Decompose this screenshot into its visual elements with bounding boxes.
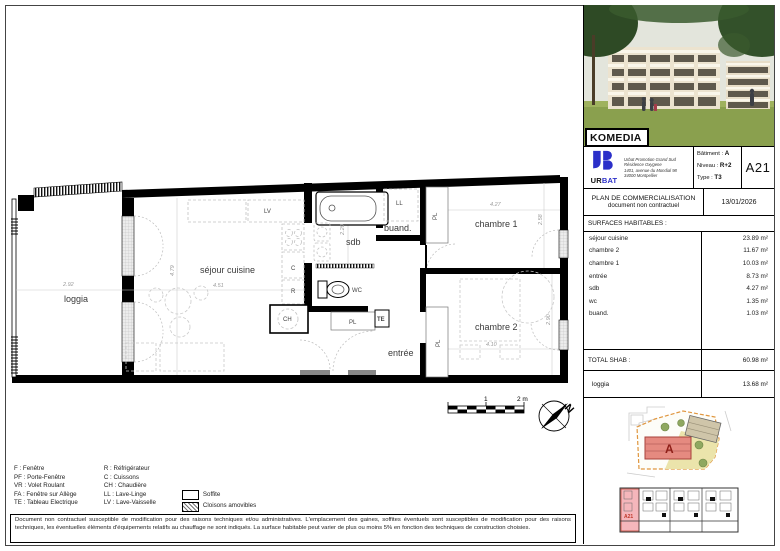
document-title: PLAN DE COMMERCIALISATION document non c…	[584, 189, 703, 215]
developer-identity: URBAT Urbat Promotion Grand Sud Résidenc…	[584, 147, 693, 188]
legend-item: R : Réfrigérateur	[104, 465, 156, 474]
plan-legend: F : Fenêtre PF : Porte-Fenêtre VR : Vole…	[14, 465, 282, 513]
urbat-wordmark: URBAT	[587, 176, 621, 185]
bedroom1-height: 2.58	[538, 213, 544, 226]
title-block-panel: KOMEDIA URBAT Urbat Promotion Grand Sud …	[583, 5, 774, 544]
entrance-hall: PL TE entrée PL	[300, 307, 448, 377]
laundry: LL buand.	[384, 189, 418, 233]
building-render	[584, 5, 774, 146]
table-row: sdb4.27 m²	[584, 282, 774, 295]
surfaces-heading: SURFACES HABITABLES :	[584, 216, 774, 232]
disclaimer-text: Document non contractuel susceptible de …	[15, 517, 571, 531]
legend-item: VR : Volet Roulant	[14, 482, 78, 491]
dishwasher-label: LV	[264, 209, 271, 215]
legend-column-2: R : Réfrigérateur C : Cuissons CH : Chau…	[104, 465, 156, 513]
loggia-width: 2.92	[62, 282, 74, 288]
table-row: entrée8.73 m²	[584, 270, 774, 283]
living-width: 4.51	[213, 283, 224, 289]
bathroom: sdb 2.20	[314, 192, 388, 268]
type-row: Type : T3	[697, 172, 741, 184]
floor-plan-drawing: LV C R CH sd	[8, 175, 583, 440]
table-divider	[701, 371, 702, 397]
hob-label: C	[291, 266, 296, 272]
living-height: 4.79	[170, 265, 176, 276]
bedroom1: PL chambre 1 4.27 2.58	[426, 187, 544, 274]
washer-label: LL	[396, 201, 403, 207]
wc-room: WC	[318, 281, 363, 298]
exterior-walls	[11, 175, 568, 383]
developer-block: URBAT Urbat Promotion Grand Sud Résidenc…	[584, 147, 774, 189]
loggia-wall-windows	[122, 198, 163, 375]
key-unit-label: A21	[624, 514, 633, 520]
bedroom1-width: 4.27	[490, 202, 502, 208]
document-title-row: PLAN DE COMMERCIALISATION document non c…	[584, 189, 774, 216]
scale-mid-label: 1	[484, 396, 488, 403]
unit-info: Bâtiment : A Niveau : R+2 Type : T3	[693, 147, 741, 188]
table-divider	[701, 350, 702, 370]
batiment-row: Bâtiment : A	[697, 148, 741, 160]
floor-key-map: A21	[618, 485, 740, 537]
legend-item: F : Fenêtre	[14, 465, 78, 474]
bedroom2-width: 4.10	[486, 342, 498, 348]
urbat-logo-icon	[591, 150, 617, 170]
legend-column-1: F : Fenêtre PF : Porte-Fenêtre VR : Vole…	[14, 465, 78, 513]
urbat-logo: URBAT	[587, 150, 621, 185]
boiler-label: CH	[283, 317, 292, 323]
bathroom-label: sdb	[346, 237, 361, 247]
bedroom2: chambre 2 4.10 2.90	[460, 271, 554, 359]
legend-item: LL : Lave-Linge	[104, 491, 156, 500]
entrance-label: entrée	[388, 348, 414, 358]
site-plan-map: A	[625, 401, 733, 479]
boiler: CH	[270, 305, 308, 333]
table-row: chambre 110.03 m²	[584, 257, 774, 270]
bedroom1-closet-label: PL	[433, 212, 439, 220]
building-photo: KOMEDIA	[584, 5, 774, 147]
north-compass: N	[539, 401, 576, 431]
legend-item: C : Cuissons	[104, 474, 156, 483]
cloisons-swatch	[182, 502, 199, 512]
table-divider	[701, 232, 702, 349]
site-building-label: A	[665, 442, 674, 456]
document-date: 13/01/2026	[703, 189, 774, 215]
scale-bar: 1 2 m	[448, 396, 528, 413]
legend-item: CH : Chaudière	[104, 482, 156, 491]
developer-address: Urbat Promotion Grand Sud Résidence Oxyg…	[621, 157, 677, 179]
legend-item: FA : Fenêtre sur Allège	[14, 491, 78, 500]
kitchen-fixtures	[188, 200, 304, 304]
fridge-label: R	[291, 289, 296, 295]
scale-end-label: 2 m	[517, 396, 528, 403]
bathroom-dim: 2.20	[340, 223, 346, 236]
wc-label: WC	[352, 288, 363, 294]
legend-column-3: Soffite Cloisons amovibles	[182, 490, 256, 513]
dimension-lines	[16, 183, 560, 375]
bedroom1-label: chambre 1	[475, 219, 518, 229]
bedroom2-height: 2.90	[546, 313, 552, 326]
site-plan-thumbnail: A	[584, 398, 774, 481]
total-shab-row: TOTAL SHAB : 60.98 m²	[584, 350, 774, 371]
legend-item-cloisons: Cloisons amovibles	[182, 502, 256, 512]
elec-panel-label: TE	[377, 317, 385, 323]
living-furniture	[126, 286, 224, 371]
legend-item: PF : Porte-Fenêtre	[14, 474, 78, 483]
plan-sheet: LV C R CH sd	[0, 0, 780, 551]
legend-item-soffite: Soffite	[182, 490, 256, 500]
bedroom2-closet-label: PL	[436, 339, 442, 347]
loggia-label: loggia	[64, 294, 88, 304]
hall-closet-label: PL	[349, 320, 357, 326]
surfaces-table: séjour cuisine23.89 m² chambre 211.67 m²…	[584, 232, 774, 350]
loggia-area-row: loggia 13.68 m²	[584, 371, 774, 398]
lot-number: A21	[741, 147, 774, 188]
project-name: KOMEDIA	[585, 128, 649, 147]
disclaimer-box: Document non contractuel susceptible de …	[10, 514, 576, 543]
living-label: séjour cuisine	[200, 265, 255, 275]
bedroom2-label: chambre 2	[475, 322, 518, 332]
soffite-swatch	[182, 490, 199, 500]
legend-item: LV : Lave-Vaisselle	[104, 499, 156, 508]
niveau-row: Niveau : R+2	[697, 160, 741, 172]
table-row: wc1.35 m²	[584, 295, 774, 308]
laundry-label: buand.	[384, 223, 412, 233]
table-row: chambre 211.67 m²	[584, 245, 774, 258]
legend-item: TE : Tableau Electrique	[14, 499, 78, 508]
floor-key-thumbnail: A21	[584, 481, 774, 546]
table-row: buand.1.03 m²	[584, 308, 774, 321]
table-row: séjour cuisine23.89 m²	[584, 232, 774, 245]
